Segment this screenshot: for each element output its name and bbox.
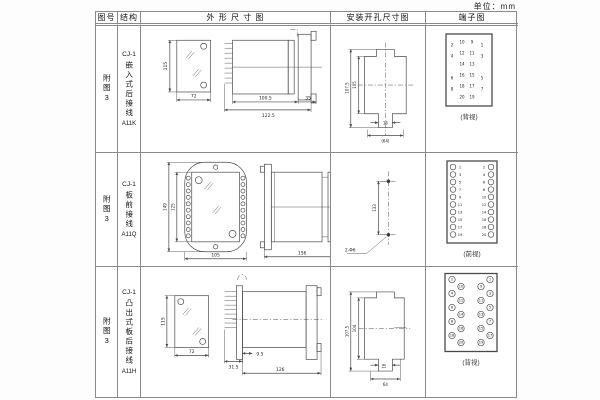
row2-model: CJ-1 bbox=[122, 181, 136, 188]
terminal-num: 1 bbox=[481, 42, 484, 47]
dim-side-length: 156 bbox=[298, 250, 307, 256]
terminal-num: 13 bbox=[458, 210, 463, 214]
row2-outline-cell: 149 125 105 156 115 bbox=[141, 153, 331, 267]
terminal-num: 13 bbox=[469, 61, 475, 66]
terminal-num: 14 bbox=[459, 61, 465, 66]
terminal-num: 12 bbox=[482, 203, 487, 207]
dim-pin-depth: 31.5 bbox=[229, 364, 239, 370]
row2-code: A11Q bbox=[122, 232, 137, 238]
terminal-num: 5 bbox=[481, 75, 484, 80]
terminal-num: 4 bbox=[451, 292, 454, 296]
header-outline-dims: 外 形 尺 寸 图 bbox=[141, 12, 331, 26]
row1-fig-no: 附图3 bbox=[103, 74, 111, 104]
terminal-num: 18 bbox=[459, 83, 465, 88]
dim-cutout-inner-h: 104 bbox=[352, 324, 357, 332]
terminal-num: 5 bbox=[489, 306, 491, 310]
hole-spec-label: 2-Φ6 bbox=[345, 248, 356, 254]
terminal-num: 8 bbox=[451, 86, 454, 91]
row1-install-drawing: 107.5 105 16 (64) bbox=[331, 26, 425, 152]
terminal-num: 15 bbox=[479, 327, 484, 331]
terminal-num: 11 bbox=[479, 299, 484, 303]
row1-model: CJ-1 bbox=[122, 51, 136, 58]
row1-install-cell: 107.5 105 16 (64) bbox=[331, 26, 426, 153]
row2-view-label: (前视) bbox=[463, 249, 480, 258]
row3-view-label: (背视) bbox=[462, 358, 479, 367]
dim-cutout-inner-h: 105 bbox=[352, 81, 357, 89]
terminal-num: 20 bbox=[459, 341, 464, 345]
manual-page: { "unit_label": "单位：mm", "header": { "fi… bbox=[0, 0, 600, 400]
dim-side-total: 126 bbox=[276, 367, 285, 373]
terminal-num: 2 bbox=[451, 42, 454, 47]
dim-cutout-outer-h: 107.5 bbox=[344, 325, 349, 337]
row3-fig-no: 附图3 bbox=[103, 317, 111, 347]
row2-structure-cell: CJ-1 板前接线 A11Q bbox=[118, 153, 141, 267]
row3-terminal-drawing: 2 1 10 9 4 3 12 11 6 5 14 13 8 7 16 15 1… bbox=[426, 267, 518, 397]
row3-terminal-circles bbox=[449, 276, 493, 345]
terminal-num: 6 bbox=[483, 180, 486, 184]
header-install-dims: 安装开孔尺寸图 bbox=[331, 12, 426, 26]
terminal-num: 18 bbox=[450, 334, 455, 338]
terminal-num: 16 bbox=[459, 327, 464, 331]
terminal-num: 19 bbox=[479, 341, 484, 345]
terminal-num: 8 bbox=[483, 188, 486, 192]
row2-outline-drawing: 149 125 105 156 115 bbox=[141, 153, 330, 266]
terminal-num: 13 bbox=[479, 313, 484, 317]
terminal-num: 16 bbox=[459, 72, 465, 77]
terminal-num: 7 bbox=[459, 188, 461, 192]
terminal-num: 14 bbox=[459, 313, 464, 317]
terminal-num: 2 bbox=[451, 278, 453, 282]
terminal-num: 8 bbox=[451, 320, 454, 324]
terminal-num: 12 bbox=[459, 50, 465, 55]
dim-side-body: 100.5 bbox=[259, 95, 272, 101]
dim-base-width: 64 bbox=[383, 382, 389, 387]
terminal-num: 9 bbox=[471, 39, 474, 44]
row2-terminal-drawing: 1 3 5 7 9 11 13 15 17 19 2 4 6 8 10 12 1… bbox=[426, 153, 518, 266]
row1-structure-cell: CJ-1 嵌入式后接线 A11K bbox=[118, 26, 141, 153]
terminal-num: 20 bbox=[459, 94, 465, 99]
row3-code: A11H bbox=[122, 369, 137, 375]
terminal-num: 17 bbox=[488, 334, 493, 338]
terminal-num: 10 bbox=[459, 39, 465, 44]
row1-structure-name: 嵌入式后接线 bbox=[125, 61, 133, 118]
header-structure: 结构 bbox=[118, 12, 141, 26]
terminal-num: 15 bbox=[458, 218, 463, 222]
row3-install-cell: 107.5 104 16 64 bbox=[331, 267, 426, 397]
terminal-num: 4 bbox=[451, 53, 454, 58]
dim-slot-width: 16 bbox=[381, 363, 386, 369]
row1-outline-cell: 115 72 100.5 35 122.5 bbox=[141, 26, 331, 153]
terminal-num: 10 bbox=[482, 195, 487, 199]
terminal-num: 16 bbox=[482, 218, 487, 222]
header-terminal-diagram: 端子图 bbox=[426, 12, 518, 26]
dim-side-flange: 35 bbox=[305, 95, 311, 101]
dim-pin-offset: 9.5 bbox=[256, 351, 263, 357]
terminal-num: 9 bbox=[480, 285, 483, 289]
terminal-num: 1 bbox=[459, 165, 461, 169]
row1-fig-no-cell: 附图3 bbox=[96, 26, 118, 153]
terminal-num: 7 bbox=[489, 320, 491, 324]
dim-front-height: 115 bbox=[160, 317, 166, 326]
spec-table: 图号 结构 外 形 尺 寸 图 安装开孔尺寸图 端子图 附图3 CJ-1 嵌入式… bbox=[95, 11, 517, 398]
row3-outline-drawing: 115 72 9.5 31.5 126 bbox=[141, 267, 330, 397]
terminal-num: 1 bbox=[489, 278, 491, 282]
terminal-num: 19 bbox=[458, 233, 463, 237]
terminal-num: 12 bbox=[459, 299, 464, 303]
row1-terminal-cell: svg [data-name="row1-terminal-drawing"] … bbox=[426, 26, 518, 153]
terminal-num: 4 bbox=[483, 173, 486, 177]
terminal-num: 19 bbox=[469, 94, 475, 99]
row1-outline-drawing: 115 72 100.5 35 122.5 bbox=[141, 26, 330, 152]
row2-install-drawing: 133 2-Φ6 bbox=[331, 153, 425, 266]
row3-fig-no-cell: 附图3 bbox=[96, 267, 118, 397]
row2-terminal-pins bbox=[186, 176, 245, 238]
dim-base-width: (64) bbox=[381, 138, 390, 143]
terminal-num: 10 bbox=[459, 285, 464, 289]
row3-model: CJ-1 bbox=[122, 289, 136, 296]
dim-cover-height: 125 bbox=[170, 203, 175, 211]
dim-hole-distance: 133 bbox=[372, 204, 377, 212]
row3-install-drawing: 107.5 104 16 64 bbox=[331, 267, 425, 397]
header-fig-no: 图号 bbox=[96, 12, 118, 26]
terminal-num: 2 bbox=[483, 165, 485, 169]
row2-install-cell: 133 2-Φ6 bbox=[331, 153, 426, 267]
dim-front-height: 115 bbox=[163, 62, 169, 71]
dim-plate-height: 149 bbox=[162, 203, 167, 211]
dim-front-width: 72 bbox=[191, 93, 197, 99]
terminal-num: 3 bbox=[489, 292, 491, 296]
terminal-num: 7 bbox=[481, 86, 484, 91]
terminal-num: 18 bbox=[482, 225, 487, 229]
terminal-num: 9 bbox=[459, 195, 462, 199]
row3-outline-cell: 115 72 9.5 31.5 126 bbox=[141, 267, 331, 397]
row1-view-label: (背视) bbox=[460, 112, 477, 121]
row2-fig-no: 附图3 bbox=[103, 195, 111, 225]
row2-structure-name: 板前接线 bbox=[125, 191, 133, 229]
row2-fig-no-cell: 附图3 bbox=[96, 153, 118, 267]
terminal-num: 11 bbox=[458, 203, 463, 207]
row3-structure-name: 凸出式板后接线 bbox=[125, 299, 133, 366]
terminal-num: 17 bbox=[458, 225, 463, 229]
terminal-num: 3 bbox=[459, 173, 461, 177]
row2-terminal-cell: 1 3 5 7 9 11 13 15 17 19 2 4 6 8 10 12 1… bbox=[426, 153, 518, 267]
terminal-num: 17 bbox=[469, 83, 475, 88]
row1-code: A11K bbox=[122, 121, 136, 127]
dim-plate-width: 105 bbox=[211, 252, 220, 258]
row3-terminal-cell: 2 1 10 9 4 3 12 11 6 5 14 13 8 7 16 15 1… bbox=[426, 267, 518, 397]
terminal-num: 11 bbox=[469, 50, 475, 55]
row3-structure-cell: CJ-1 凸出式板后接线 A11H bbox=[118, 267, 141, 397]
terminal-num: 14 bbox=[482, 210, 487, 214]
dim-front-width: 72 bbox=[189, 349, 195, 355]
dim-side-total: 122.5 bbox=[262, 113, 275, 119]
terminal-num: 3 bbox=[481, 53, 484, 58]
terminal-num: 6 bbox=[451, 306, 454, 310]
terminal-num: 15 bbox=[469, 72, 475, 77]
terminal-num: 5 bbox=[459, 180, 461, 184]
row1-terminal-drawing: svg [data-name="row1-terminal-drawing"] … bbox=[426, 26, 518, 152]
dim-cutout-outer-h: 107.5 bbox=[344, 82, 349, 94]
dim-slot-width: 16 bbox=[383, 120, 389, 125]
terminal-num: 20 bbox=[482, 233, 487, 237]
terminal-num: 6 bbox=[451, 75, 454, 80]
